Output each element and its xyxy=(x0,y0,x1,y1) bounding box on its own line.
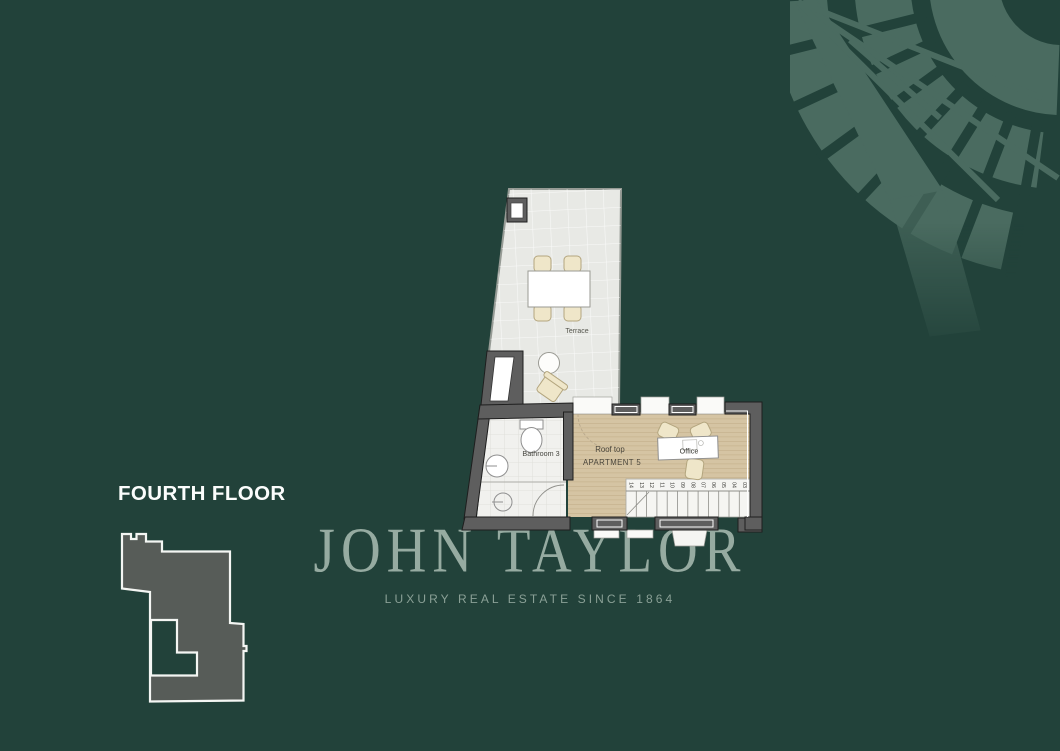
svg-text:10: 10 xyxy=(669,482,675,488)
svg-text:12: 12 xyxy=(648,482,654,488)
office-label: Office xyxy=(680,447,699,456)
dining-table xyxy=(528,271,590,307)
sink xyxy=(486,455,508,477)
svg-text:05: 05 xyxy=(720,482,726,488)
staircase: 14 13 12 11 10 09 08 07 06 05 04 03 xyxy=(626,479,750,517)
svg-text:03: 03 xyxy=(741,482,747,488)
terrace-label: Terrace xyxy=(565,328,588,335)
rooftop-label-line2: APARTMENT 5 xyxy=(583,458,641,467)
footprint-shape xyxy=(122,534,247,702)
svg-text:08: 08 xyxy=(689,482,695,488)
svg-text:06: 06 xyxy=(710,482,716,488)
bathroom-label: Bathroom 3 xyxy=(522,449,559,458)
svg-text:13: 13 xyxy=(638,482,644,488)
building-footprint-minimap xyxy=(110,526,260,708)
floor-plan: 14 13 12 11 10 09 08 07 06 05 04 03 xyxy=(440,170,780,550)
side-table xyxy=(539,353,560,374)
svg-text:07: 07 xyxy=(700,482,706,488)
svg-text:11: 11 xyxy=(658,482,664,487)
toilet xyxy=(520,420,543,453)
brochure-page: FOURTH FLOOR JOHN TAYLOR LUXURY REAL EST… xyxy=(0,0,1060,751)
svg-text:09: 09 xyxy=(679,482,685,488)
rooftop-label-line1: Roof top xyxy=(595,445,625,454)
brand-tagline: LUXURY REAL ESTATE SINCE 1864 xyxy=(265,592,795,606)
staircase-pattern-decoration xyxy=(790,0,1060,360)
svg-text:14: 14 xyxy=(628,482,634,488)
floor-title: FOURTH FLOOR xyxy=(118,482,286,506)
svg-text:04: 04 xyxy=(731,482,737,488)
